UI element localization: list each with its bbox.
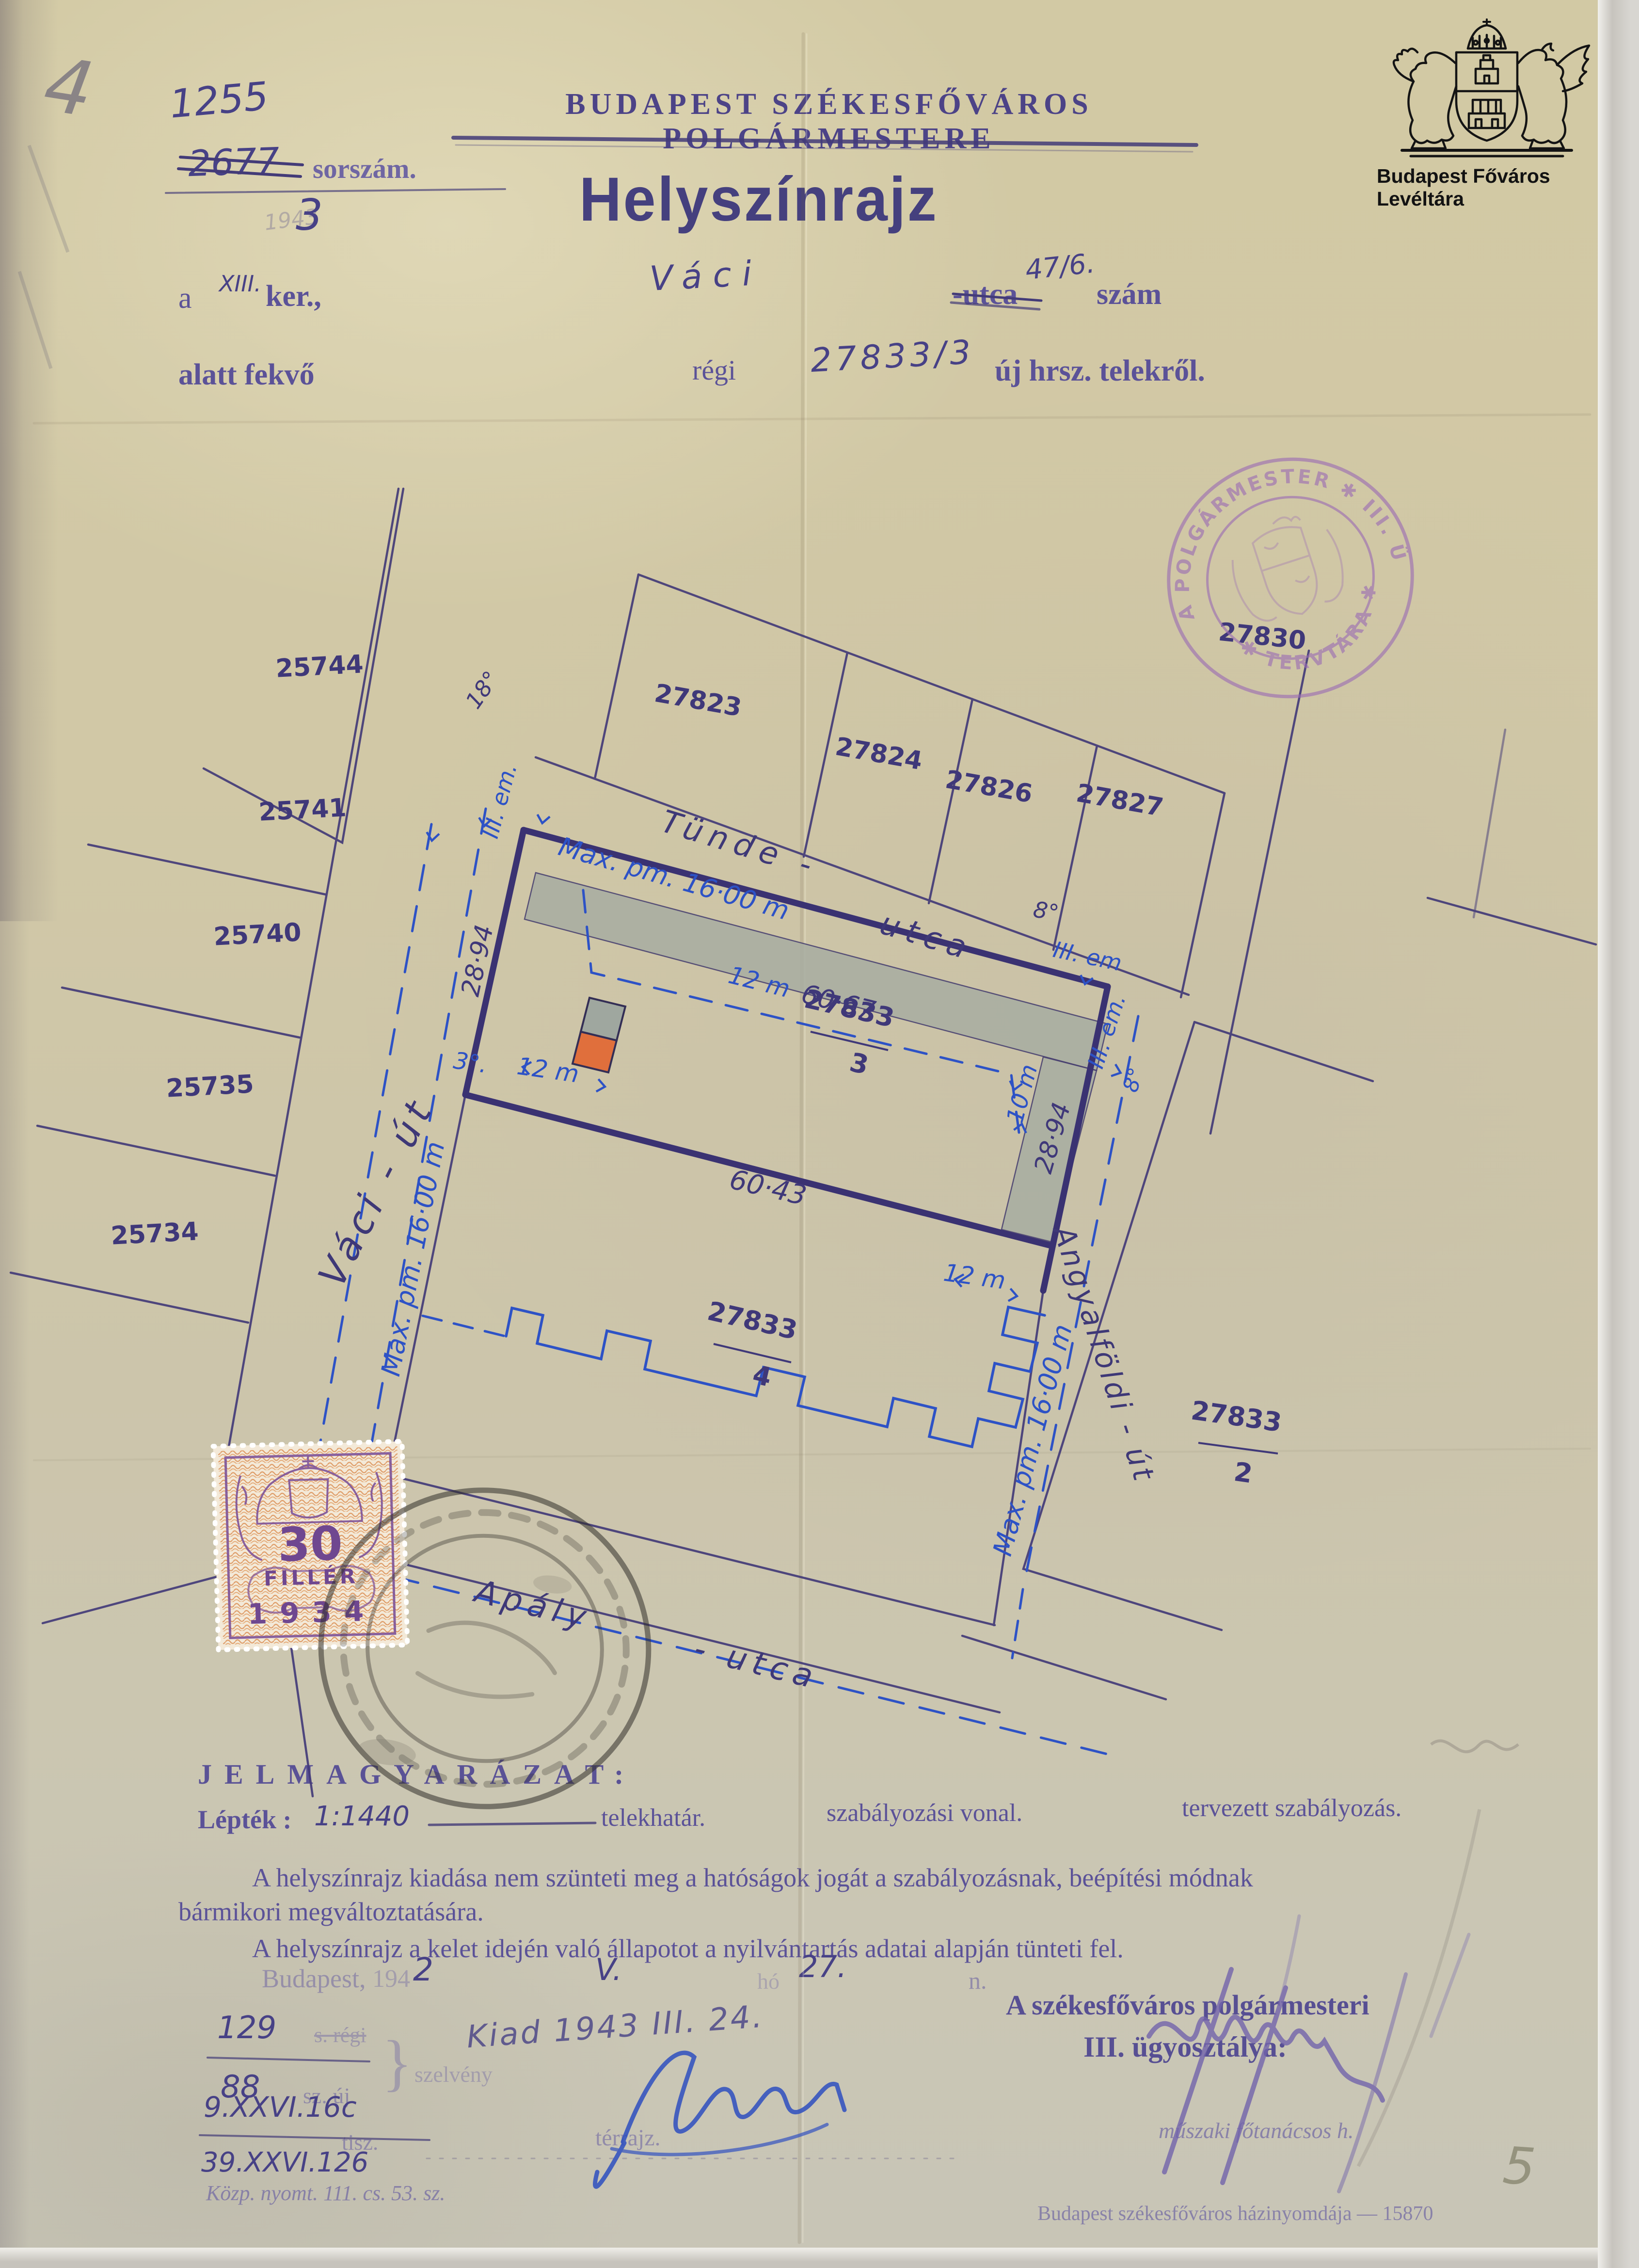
- signature-ink-purple: [1149, 1916, 1469, 2191]
- parcel-a-denominator: 3: [847, 1047, 872, 1081]
- signature-ink-blue: [595, 2053, 844, 2187]
- dim-12m-left: 12 m: [515, 1052, 581, 1088]
- stamp-coat-of-arms: [1221, 504, 1353, 630]
- dim-18deg: 18°: [460, 666, 504, 714]
- plot-label-27827: 27827: [1074, 779, 1166, 823]
- plot-label-25744: 25744: [275, 650, 364, 683]
- revenue-stamp-value: 30: [277, 1516, 343, 1572]
- pencil-corner-mark: 4: [38, 40, 99, 134]
- pencil-marks: 4 5: [19, 40, 1537, 2197]
- scanned-site-plan-document: { "page": { "corner_mark": "4", "page_ma…: [0, 0, 1639, 2268]
- plot-label-25740: 25740: [213, 918, 302, 951]
- dim-8deg-tunde: 8°: [1031, 896, 1061, 926]
- plot-label-25735: 25735: [165, 1070, 255, 1103]
- plot-label-27826: 27826: [943, 765, 1035, 809]
- scanner-background-bottom: [0, 2248, 1598, 2268]
- dim-iii-em-topright: III. em: [1051, 936, 1124, 976]
- parcel-fraction-labels: 27833 3 27833 4 27833 2: [705, 983, 1284, 1489]
- parcel-c-numerator: 27833: [1189, 1395, 1284, 1438]
- dim-8deg-right: 8°: [1118, 1065, 1149, 1095]
- header-rules: [166, 138, 1196, 309]
- paper-creases: [34, 34, 1590, 2242]
- plot-label-25741: 25741: [258, 793, 347, 827]
- revenue-stamp: 30 FILLÉR 1934: [213, 1441, 408, 1650]
- dim-iii-em-left: III. em.: [477, 761, 522, 841]
- revenue-stamp-year: 1934: [247, 1594, 377, 1630]
- scanner-background-right: [1598, 0, 1639, 2268]
- dim-12m-right: 12 m: [942, 1259, 1007, 1295]
- parcel-b-denominator: 4: [750, 1359, 775, 1393]
- parcel-b-numerator: 27833: [705, 1295, 800, 1346]
- plot-label-27824: 27824: [833, 732, 925, 776]
- street-label-tunde2: utca: [876, 906, 977, 968]
- dim-3deg: 3°.: [452, 1047, 489, 1079]
- plot-label-25734: 25734: [110, 1217, 199, 1250]
- pencil-page-mark: 5: [1501, 2136, 1537, 2197]
- plot-label-27823: 27823: [652, 679, 744, 723]
- parcel-c-denominator: 2: [1232, 1456, 1255, 1489]
- street-label-apaly2: - utca: [690, 1629, 822, 1696]
- site-plan-drawing: 25744 25741 25740 25735 25734 27823 2782…: [0, 0, 1639, 2268]
- parcel-fraction-rules: [714, 1032, 1278, 1453]
